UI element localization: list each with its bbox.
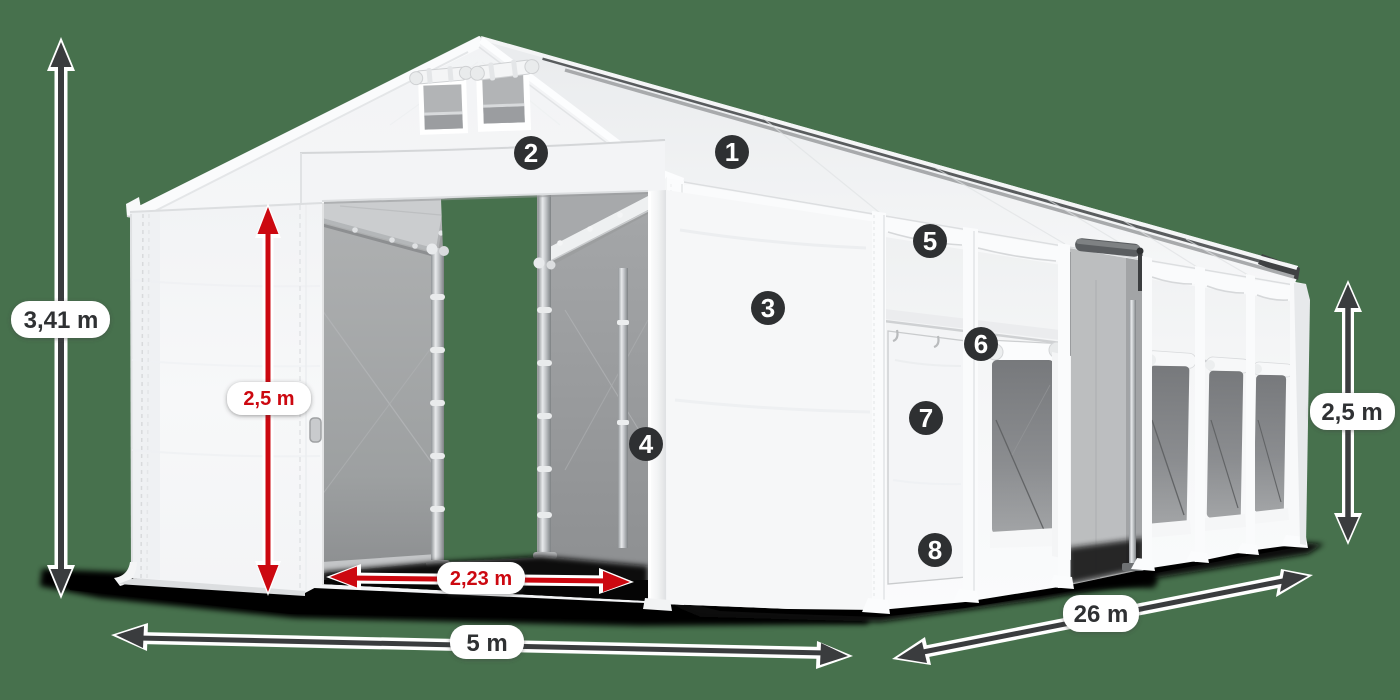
svg-text:2,5 m: 2,5 m [243, 388, 294, 410]
svg-text:26 m: 26 m [1074, 601, 1129, 628]
svg-text:6: 6 [974, 329, 988, 359]
svg-text:3: 3 [761, 293, 775, 323]
svg-text:1: 1 [725, 137, 739, 167]
svg-text:7: 7 [919, 403, 933, 433]
svg-text:8: 8 [928, 535, 942, 565]
svg-text:4: 4 [639, 429, 654, 459]
svg-text:5 m: 5 m [466, 630, 507, 657]
svg-text:2: 2 [524, 138, 538, 168]
svg-text:2,23 m: 2,23 m [450, 568, 512, 590]
svg-text:2,5 m: 2,5 m [1321, 399, 1382, 426]
svg-text:3,41 m: 3,41 m [24, 307, 99, 334]
svg-text:5: 5 [923, 226, 937, 256]
